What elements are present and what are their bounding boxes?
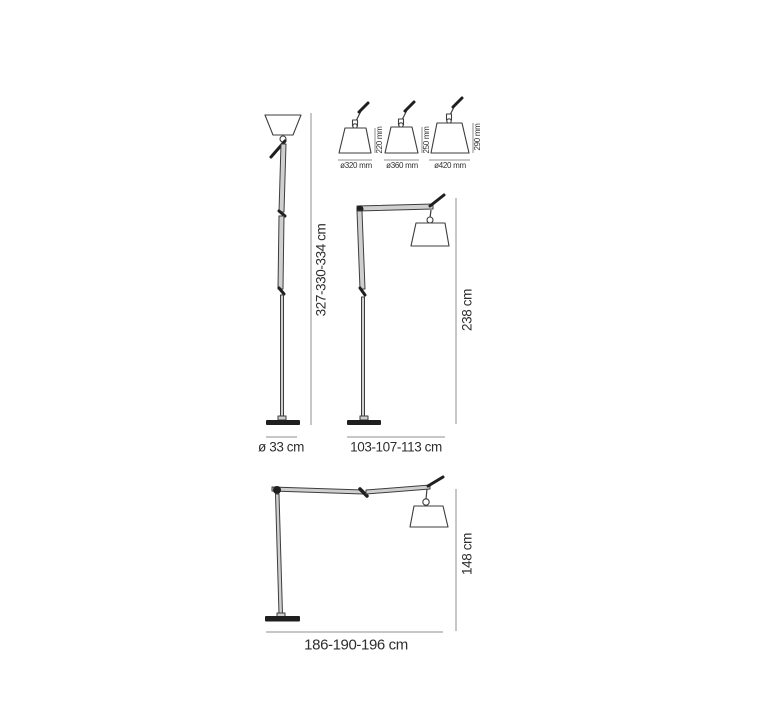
reading-shade-stem	[426, 489, 427, 499]
reading-height-label: 148 cm	[460, 533, 474, 575]
uplighter-base-diameter-label: ø 33 cm	[258, 440, 304, 454]
reading-base	[265, 616, 300, 622]
cantilever-pole	[362, 297, 365, 417]
uplighter-height-label: 327-330-334 cm	[314, 224, 328, 317]
cantilever-shade	[411, 223, 449, 246]
shade-420-shade	[431, 123, 469, 153]
cantilever-upper-arm	[357, 211, 365, 289]
shade-option-420-drawing	[429, 98, 473, 160]
uplighter-mid-arm	[278, 216, 284, 289]
uplighter-pole	[281, 295, 284, 417]
shade-420-height-label: 290 mm	[474, 123, 482, 150]
shade-360-diameter-label: ø360 mm	[386, 162, 418, 170]
shade-320-lever	[359, 103, 368, 112]
reading-arm-outer	[366, 485, 430, 494]
shade-360-lever	[405, 102, 414, 111]
cantilever-shade-ring	[427, 217, 433, 223]
reading-shoulder-joint	[273, 486, 281, 494]
shade-360-height-label: 250 mm	[423, 126, 431, 153]
shade-320-height-label: 220 mm	[376, 126, 384, 153]
shade-option-360-drawing	[384, 102, 422, 160]
uplighter-base	[266, 420, 300, 425]
cantilever-head-lever	[430, 195, 444, 206]
cantilever-height-label: 238 cm	[460, 289, 474, 331]
reading-shade-ring	[423, 499, 429, 505]
reading-head-lever	[428, 477, 443, 486]
lamp-line-art	[0, 0, 774, 705]
shade-420-lever	[453, 98, 462, 107]
lamp-dimension-diagram: 327-330-334 cm ø 33 cm 238 cm 103-107-11…	[0, 0, 774, 705]
cantilever-lamp-drawing	[347, 195, 456, 437]
cantilever-base-nub	[360, 416, 368, 420]
reading-shade	[410, 506, 448, 527]
uplighter-lamp-drawing	[265, 113, 311, 437]
shade-360-shade	[385, 127, 418, 153]
cantilever-horizontal-arm	[357, 204, 433, 211]
reading-lamp-drawing	[265, 477, 456, 632]
reading-pole	[276, 494, 283, 614]
shade-320-diameter-label: ø320 mm	[340, 162, 372, 170]
uplighter-shade	[265, 115, 301, 135]
shade-320-shade	[339, 128, 371, 153]
reading-reach-label: 186-190-196 cm	[304, 638, 408, 653]
reading-arm-inner	[272, 487, 363, 494]
shade-option-320-drawing	[338, 103, 375, 160]
uplighter-upper-arm	[279, 144, 286, 212]
uplighter-base-nub	[278, 416, 286, 420]
cantilever-reach-label: 103-107-113 cm	[350, 440, 442, 454]
shade-420-diameter-label: ø420 mm	[434, 162, 466, 170]
cantilever-base	[347, 420, 381, 425]
